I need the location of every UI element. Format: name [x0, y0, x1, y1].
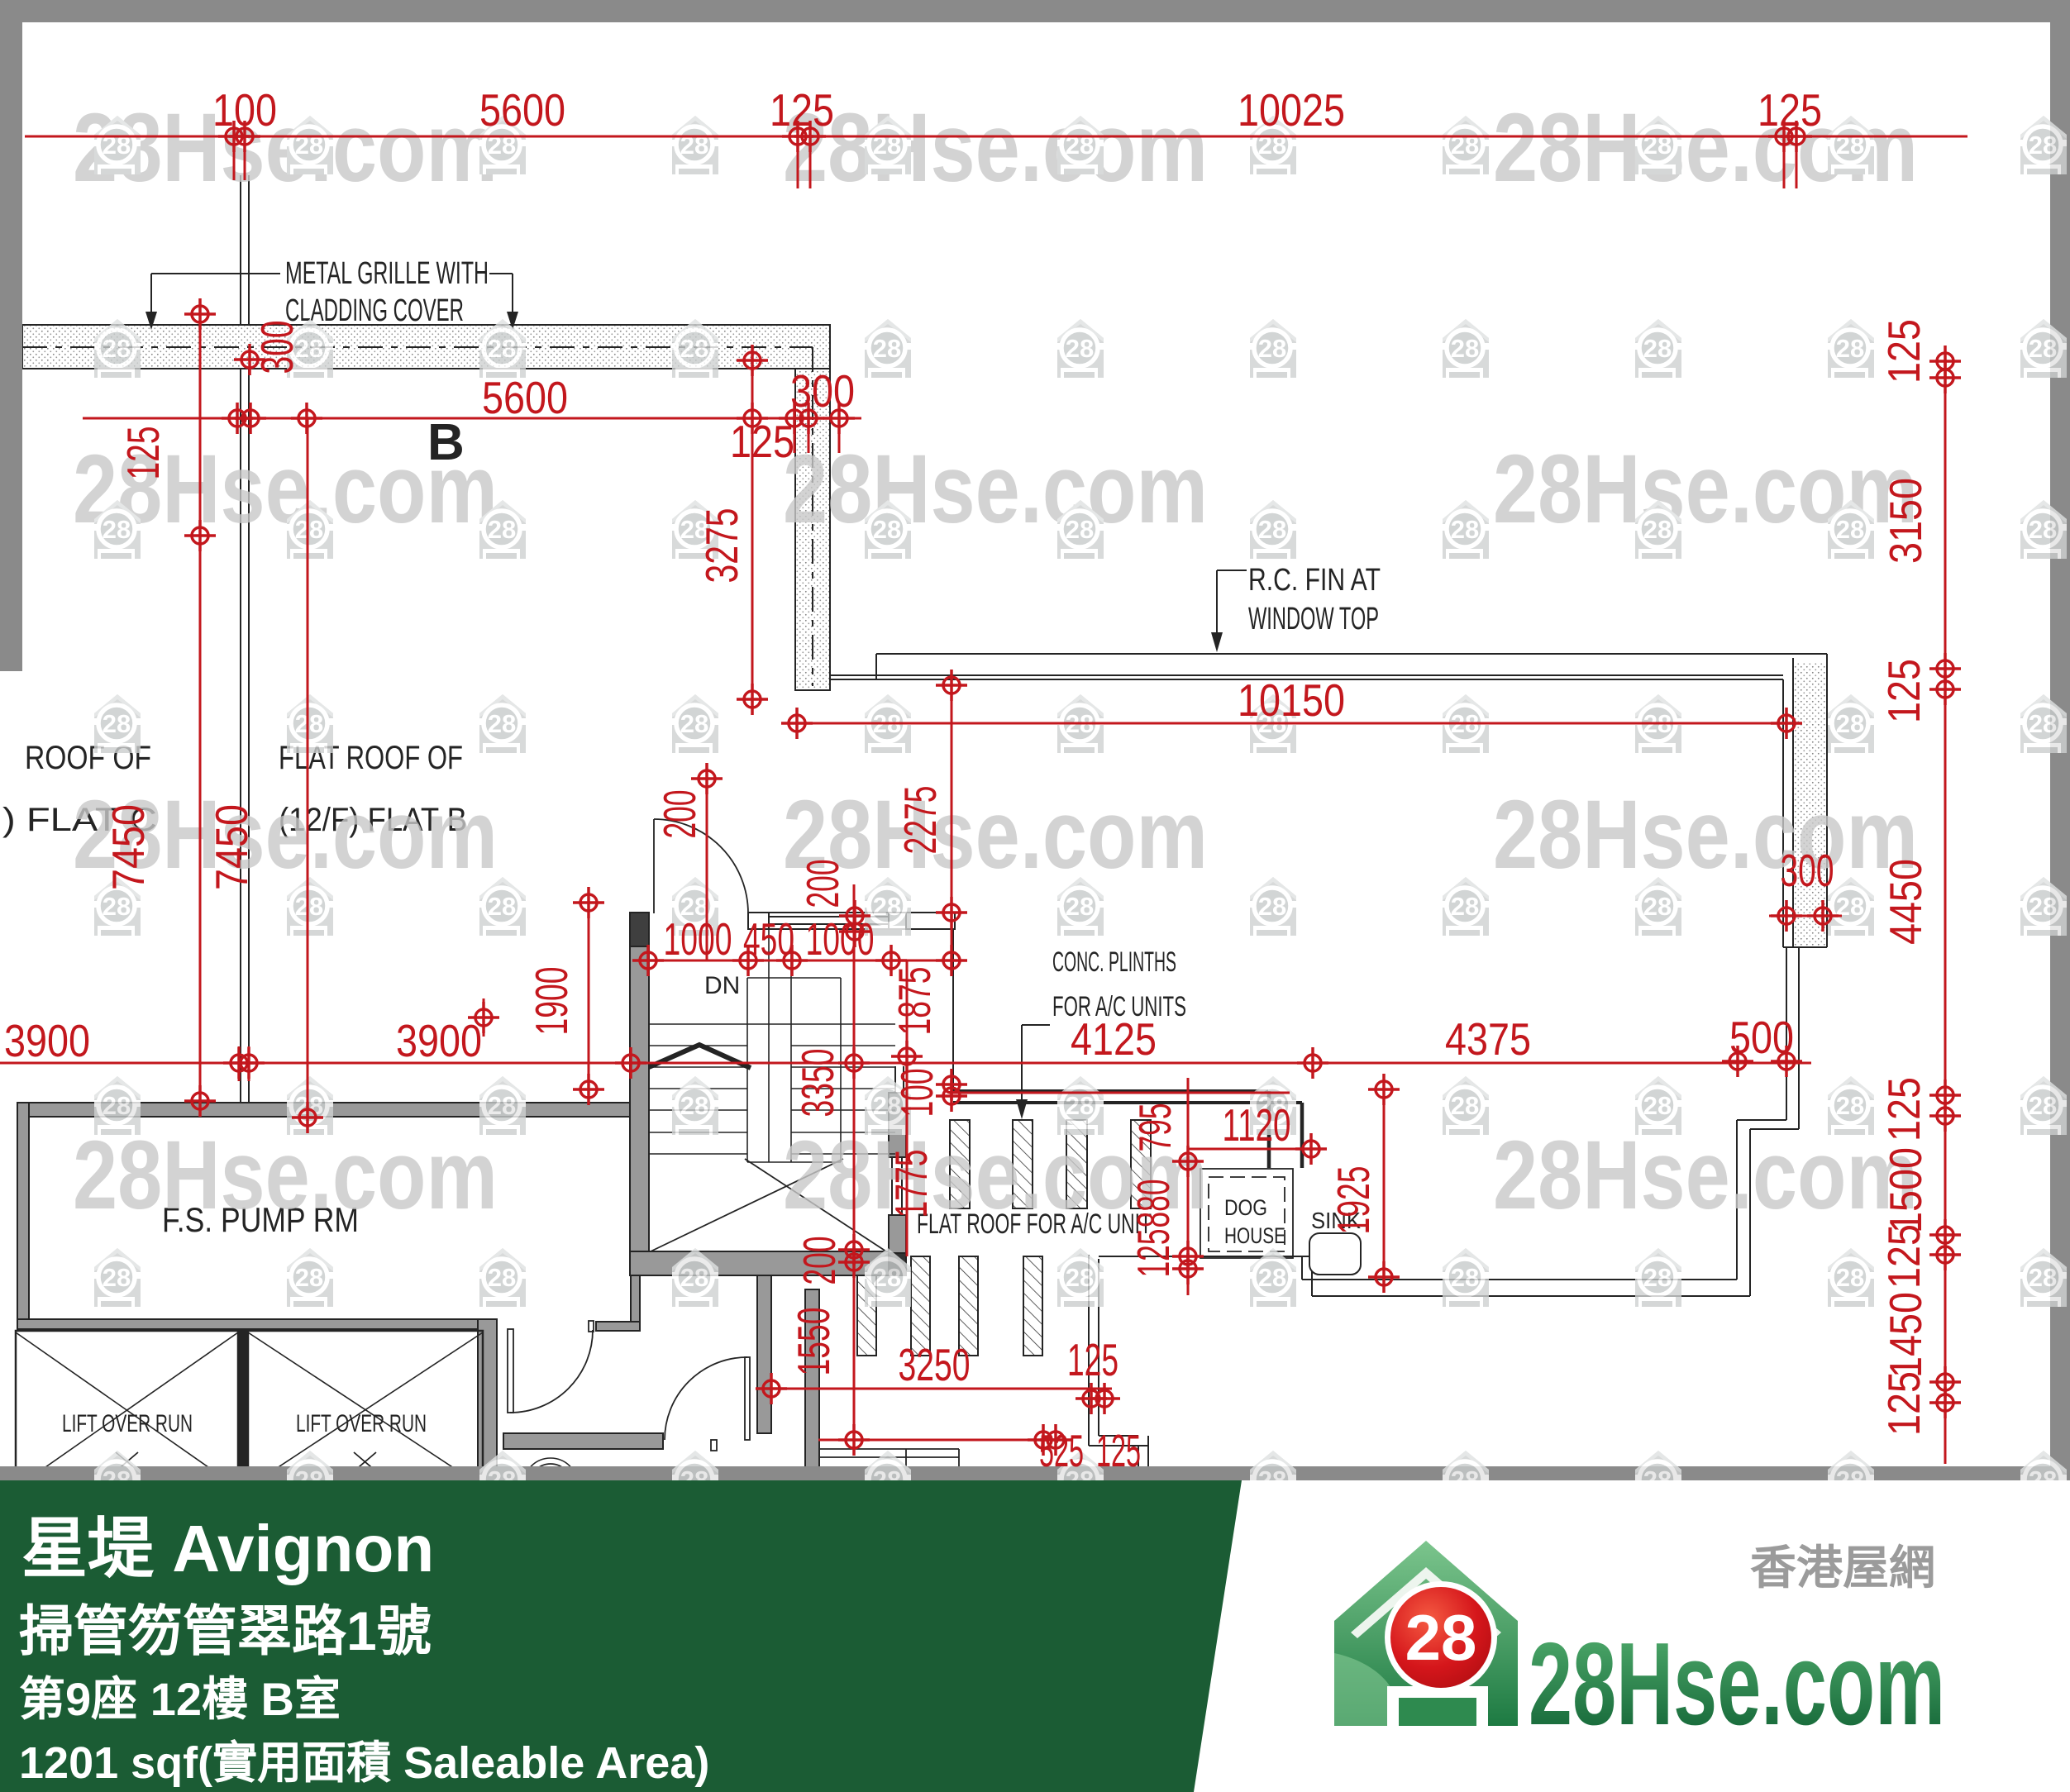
svg-text:125: 125: [730, 416, 794, 467]
svg-text:200: 200: [797, 860, 848, 908]
svg-text:第9座 12樓 B室: 第9座 12樓 B室: [19, 1673, 341, 1725]
svg-text:795: 795: [1129, 1103, 1180, 1152]
svg-text:7450: 7450: [206, 804, 257, 890]
svg-text:125: 125: [1096, 1425, 1141, 1476]
svg-text:1775: 1775: [885, 1150, 937, 1218]
svg-text:125: 125: [1878, 319, 1929, 384]
svg-text:3150: 3150: [1880, 478, 1931, 564]
svg-text:28Hse.com: 28Hse.com: [1493, 1121, 1918, 1230]
svg-text:5600: 5600: [479, 84, 565, 136]
svg-text:3350: 3350: [792, 1049, 843, 1118]
svg-text:4450: 4450: [1880, 859, 1931, 945]
svg-text:7450: 7450: [103, 804, 154, 890]
svg-text:星堤 Avignon: 星堤 Avignon: [21, 1512, 434, 1585]
svg-text:LIFT OVER RUN: LIFT OVER RUN: [62, 1410, 193, 1437]
svg-text:125: 125: [1878, 1224, 1929, 1289]
svg-text:450: 450: [743, 913, 794, 965]
svg-text:1900: 1900: [526, 967, 577, 1036]
svg-text:LIFT OVER RUN: LIFT OVER RUN: [296, 1410, 427, 1437]
svg-text:3275: 3275: [696, 508, 747, 584]
svg-text:100: 100: [891, 1069, 942, 1118]
svg-text:28: 28: [1405, 1601, 1477, 1674]
svg-text:525: 525: [1039, 1425, 1084, 1476]
svg-text:1925: 1925: [1328, 1166, 1379, 1235]
svg-text:5600: 5600: [482, 372, 568, 423]
svg-text:200: 200: [654, 790, 705, 839]
svg-text:125: 125: [1878, 659, 1929, 723]
svg-text:28Hse.com: 28Hse.com: [783, 93, 1208, 203]
svg-text:125: 125: [1128, 1229, 1179, 1278]
svg-text:1875: 1875: [889, 967, 940, 1036]
svg-text:HOUSE: HOUSE: [1224, 1223, 1285, 1248]
svg-text:METAL GRILLE WITH: METAL GRILLE WITH: [285, 256, 489, 291]
svg-text:3900: 3900: [4, 1015, 90, 1066]
svg-text:200: 200: [794, 1237, 845, 1285]
svg-text:28Hse.com: 28Hse.com: [1493, 780, 1918, 889]
svg-text:3900: 3900: [396, 1015, 482, 1066]
svg-text:125: 125: [117, 427, 169, 480]
svg-text:CONC. PLINTHS: CONC. PLINTHS: [1052, 946, 1176, 978]
svg-text:1550: 1550: [788, 1308, 839, 1376]
svg-text:WINDOW TOP: WINDOW TOP: [1248, 602, 1379, 636]
svg-text:500: 500: [1729, 1012, 1794, 1063]
svg-text:4375: 4375: [1445, 1013, 1531, 1065]
svg-text:1450: 1450: [1880, 1292, 1931, 1378]
svg-text:1201 sqf(實用面積 Saleable Area): 1201 sqf(實用面積 Saleable Area): [19, 1738, 709, 1788]
svg-text:125: 125: [1758, 84, 1822, 136]
svg-text:香港屋網: 香港屋網: [1750, 1542, 1935, 1594]
svg-text:2275: 2275: [894, 786, 946, 855]
svg-text:28Hse.com: 28Hse.com: [73, 1121, 498, 1230]
svg-text:28Hse.com: 28Hse.com: [783, 435, 1208, 544]
svg-text:125: 125: [1878, 1077, 1929, 1141]
svg-text:10150: 10150: [1238, 674, 1345, 726]
svg-text:125: 125: [1067, 1334, 1118, 1385]
svg-text:28Hse.com: 28Hse.com: [1529, 1618, 1945, 1750]
svg-text:3250: 3250: [899, 1339, 971, 1390]
svg-text:R.C. FIN AT: R.C. FIN AT: [1248, 563, 1381, 598]
svg-text:125: 125: [1878, 1371, 1929, 1436]
svg-text:DOG: DOG: [1224, 1195, 1267, 1220]
svg-text:300: 300: [790, 365, 855, 417]
svg-text:1120: 1120: [1223, 1099, 1291, 1151]
svg-text:125: 125: [770, 84, 834, 136]
svg-text:300: 300: [251, 321, 303, 374]
svg-text:DN: DN: [704, 972, 740, 999]
svg-text:1500: 1500: [1880, 1147, 1931, 1233]
svg-text:1000: 1000: [664, 913, 732, 965]
svg-text:300: 300: [1781, 845, 1834, 896]
svg-text:880: 880: [1128, 1180, 1179, 1228]
svg-text:10025: 10025: [1238, 84, 1345, 136]
svg-text:4125: 4125: [1071, 1013, 1157, 1065]
svg-text:掃管笏管翠路1號: 掃管笏管翠路1號: [19, 1600, 432, 1661]
svg-text:100: 100: [212, 84, 277, 136]
svg-text:1000: 1000: [806, 913, 875, 965]
